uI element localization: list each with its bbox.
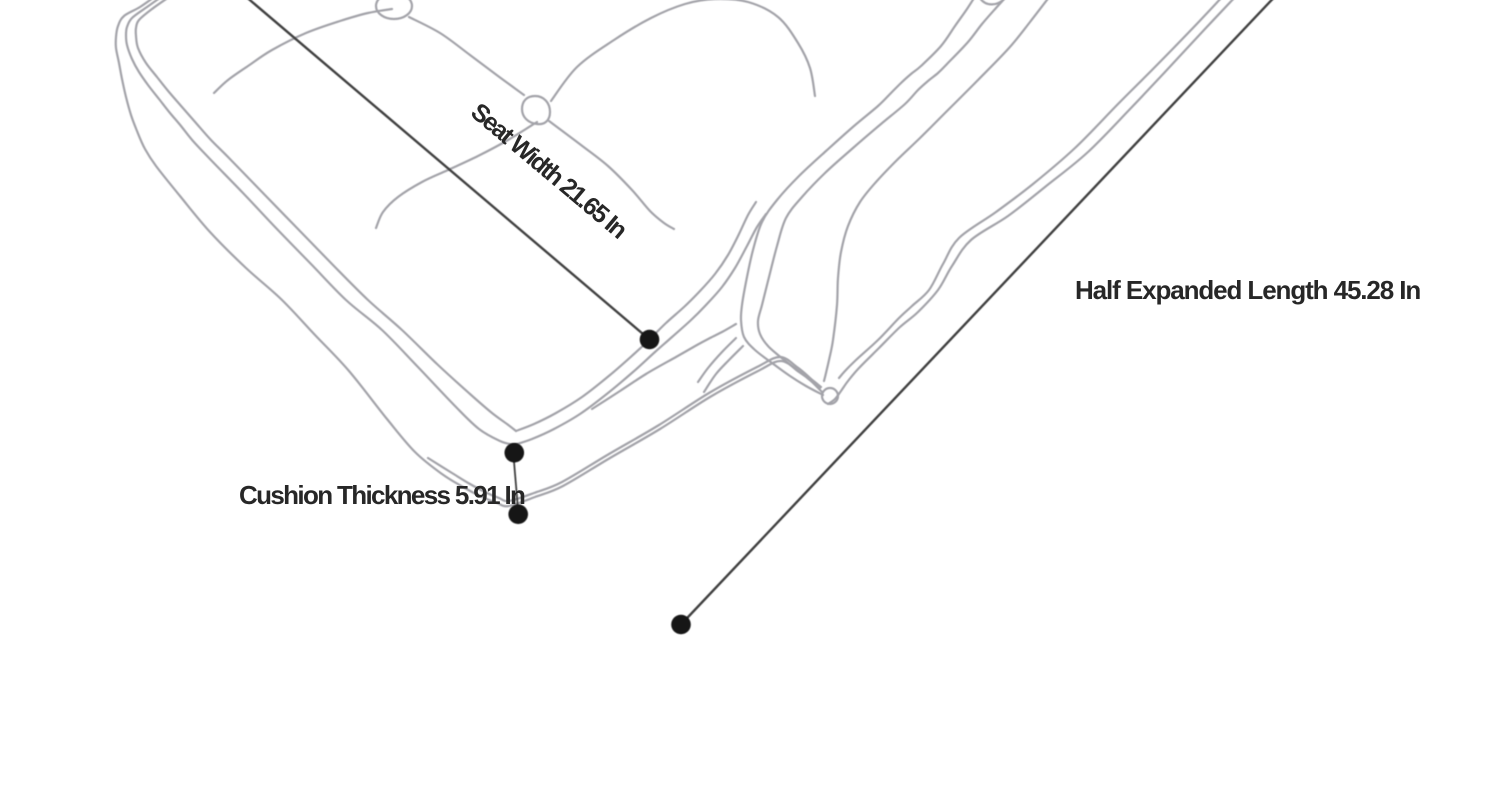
svg-text:Half Expanded Length 45.28 In: Half Expanded Length 45.28 In	[1075, 275, 1420, 305]
svg-text:Cushion Thickness 5.91 In: Cushion Thickness 5.91 In	[239, 480, 525, 510]
